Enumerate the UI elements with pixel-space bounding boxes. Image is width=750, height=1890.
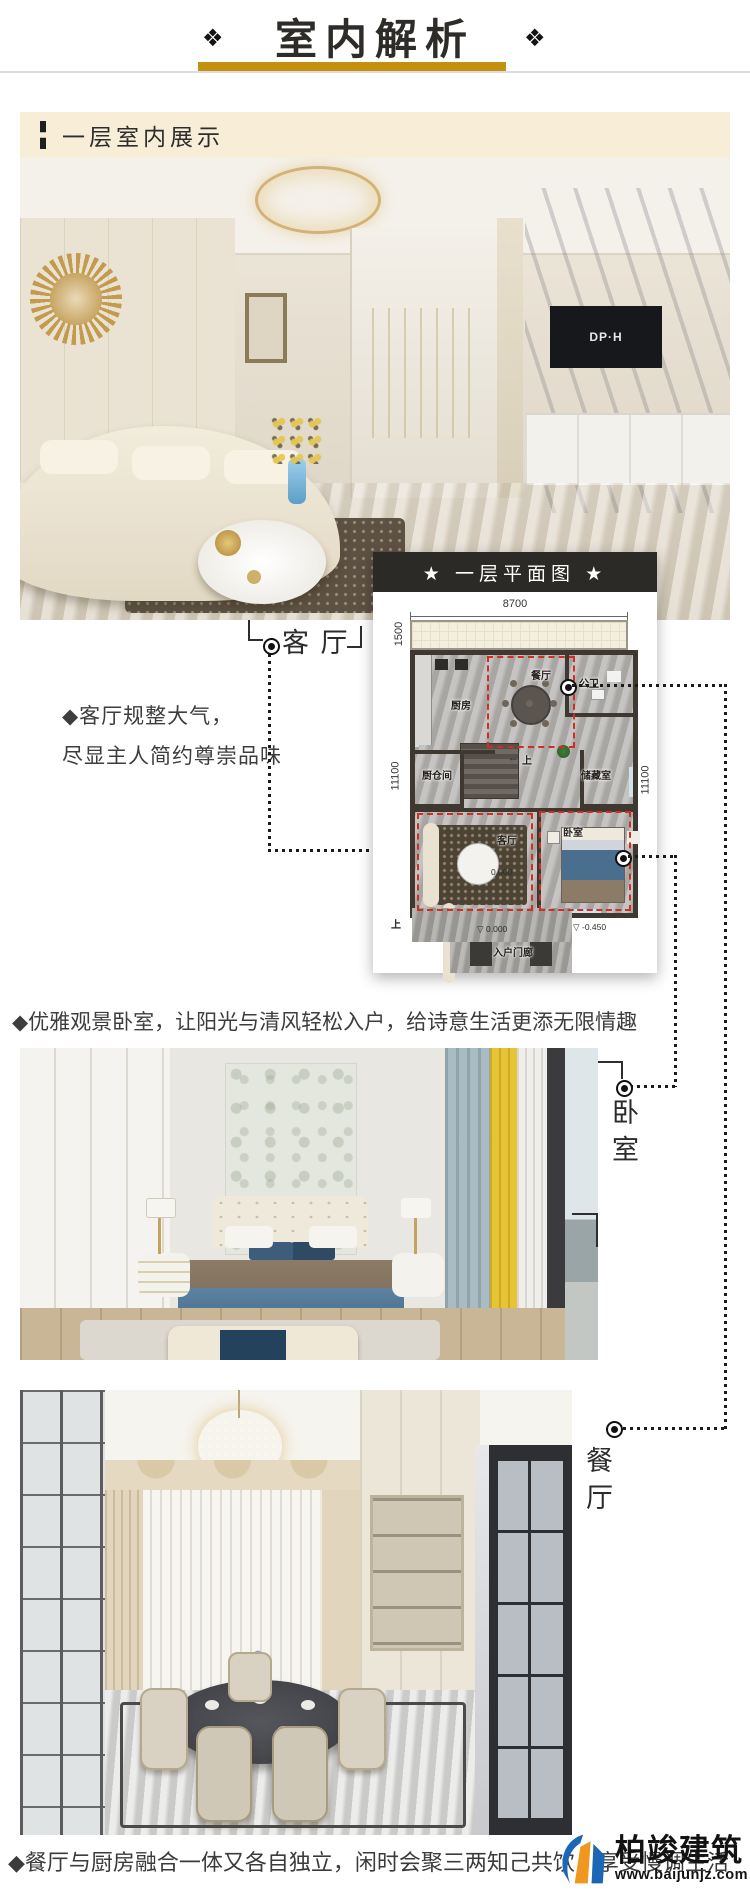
side-drapes xyxy=(105,1460,143,1690)
up-outside-label: 上 xyxy=(391,916,401,931)
floor-plan-title-bar: ★ 一层平面图 ★ xyxy=(373,552,657,592)
bedroom-photo xyxy=(20,1048,598,1360)
lamp-shades xyxy=(146,1198,176,1218)
chair-front-left xyxy=(196,1726,252,1822)
level-porch: 0.000 xyxy=(486,924,507,934)
bedroom-label-bullet xyxy=(616,1080,633,1097)
living-tag: 客 厅 xyxy=(282,621,350,660)
dining-tag: 餐厅 xyxy=(578,1446,617,1520)
room-label-pantry: 厨仓间 xyxy=(422,767,452,782)
room-label-kitchen: 厨房 xyxy=(451,697,471,712)
room-label-living: 客厅 xyxy=(497,832,517,847)
porch-mats xyxy=(470,942,492,966)
promo-page: 室内解析 ❖ ❖ 一层室内展示 DP·H 客 厅 xyxy=(0,0,750,1890)
curtain-yellow xyxy=(490,1048,517,1338)
floor-plan: 厨房 餐厅 公卫 厨仓间 储藏室 客厅 卧室 0.000 ← 上 xyxy=(410,650,638,918)
dim-top-line xyxy=(410,616,628,617)
dim-left: 11100 xyxy=(389,762,401,791)
floor-plan-title: ★ 一层平面图 ★ xyxy=(423,559,608,586)
level-porch-marker: ▽ xyxy=(477,924,484,935)
section-bar: 一层室内展示 xyxy=(20,112,730,158)
bedroom-bracket-vertical xyxy=(621,1061,623,1079)
ornament-left-icon: ❖ xyxy=(202,24,224,53)
dining-connector-vertical xyxy=(724,684,727,1430)
sunburst-center xyxy=(50,273,102,325)
room-label-porch: 入户门廊 xyxy=(493,944,533,959)
dining-room-photo xyxy=(20,1390,572,1835)
tag-bracket-right-vertical xyxy=(360,626,362,648)
page-title: 室内解析 xyxy=(0,6,750,67)
chair-back xyxy=(228,1652,272,1702)
living-highlight-box xyxy=(417,813,533,911)
bedroom-plan-bullet xyxy=(615,850,632,867)
chair-front-right xyxy=(272,1726,328,1822)
chair-left xyxy=(140,1688,188,1770)
room-label-storage: 储藏室 xyxy=(581,767,611,782)
media-console xyxy=(525,413,730,485)
coffee-table xyxy=(198,520,326,604)
stairs-arrow-icon: ← xyxy=(508,752,519,764)
watermark-texts: 柏竣建筑 www.baijunjz.com xyxy=(615,1835,748,1883)
room-label-dining: 餐厅 xyxy=(531,667,551,682)
dining-label-bullet xyxy=(606,1421,623,1438)
tv-logo-text: DP·H xyxy=(589,330,622,344)
living-desc-line2: 尽显主人简约尊崇品味 xyxy=(62,740,282,770)
gold-decor xyxy=(215,530,241,556)
sofa-cushions xyxy=(40,440,118,474)
watermark-site: www.baijunjz.com xyxy=(615,1868,748,1883)
window-view xyxy=(565,1048,598,1360)
stair-railing xyxy=(372,308,472,438)
curtain-swag xyxy=(105,1460,360,1490)
header-divider xyxy=(0,71,750,73)
flower-arrangement xyxy=(270,416,322,464)
title-underline xyxy=(198,62,506,71)
curtain-bluegray xyxy=(445,1048,490,1338)
chandelier xyxy=(255,166,381,234)
living-connector-horizontal xyxy=(268,849,388,852)
living-connector-vertical xyxy=(268,654,271,850)
bedroom-desc: ◆优雅观景卧室，让阳光与清风轻松入户，给诗意生活更添无限情趣 xyxy=(12,1006,637,1036)
glass-partition xyxy=(20,1390,105,1835)
place-settings xyxy=(205,1700,219,1710)
dining-bracket-vertical xyxy=(596,1213,598,1247)
tag-bracket-left-horizontal xyxy=(248,639,263,641)
tag-bracket-left-vertical xyxy=(248,620,250,641)
living-room-photo: DP·H xyxy=(20,158,730,620)
corridor-curtain xyxy=(497,218,523,498)
dining-connector-top xyxy=(572,684,726,687)
bedroom-tag: 卧室 xyxy=(604,1098,643,1172)
chair-right xyxy=(338,1688,386,1770)
tag-bracket-right-horizontal xyxy=(347,646,362,648)
room-label-bedroom: 卧室 xyxy=(563,824,583,839)
wall-art xyxy=(245,293,287,363)
level-outside-marker: ▽ xyxy=(573,922,580,933)
watermark-brand: 柏竣建筑 xyxy=(615,1835,748,1868)
door-glass xyxy=(498,1458,563,1818)
ornament-right-icon: ❖ xyxy=(524,24,546,53)
bedroom-connector-vertical xyxy=(674,855,677,1087)
section-label: 一层室内展示 xyxy=(62,118,224,152)
bench-throw xyxy=(220,1330,286,1360)
bedroom-connector-bottom xyxy=(630,1085,676,1088)
marble-trim xyxy=(475,1445,489,1835)
dining-connector-bottom xyxy=(616,1427,726,1430)
tv-screen: DP·H xyxy=(550,306,662,368)
blue-vase xyxy=(288,458,306,504)
dining-bracket-horizontal xyxy=(572,1213,598,1215)
display-niche xyxy=(370,1495,464,1651)
living-tag-bullet xyxy=(263,638,280,655)
bedroom-connector-top xyxy=(628,855,676,858)
curtain-sheer xyxy=(517,1048,547,1338)
stairs-up-label: 上 xyxy=(522,752,532,767)
nightstands xyxy=(138,1253,190,1297)
living-desc-line1: ◆客厅规整大气， xyxy=(62,700,233,730)
dining-plan-bullet xyxy=(560,679,577,696)
dim-top: 8700 xyxy=(373,598,657,610)
level-living: 0.000 xyxy=(491,867,512,877)
level-outside: -0.450 xyxy=(582,922,606,932)
dim-right: 11100 xyxy=(639,766,651,795)
balcony xyxy=(410,620,628,650)
dashed-bar-icon xyxy=(40,121,46,149)
floor-plan-panel: ★ 一层平面图 ★ 8700 1500 11100 11100 厨房 xyxy=(373,552,657,973)
watermark: 柏竣建筑 www.baijunjz.com xyxy=(555,1830,748,1888)
pillows xyxy=(225,1226,273,1248)
bedroom-bracket-horizontal xyxy=(598,1061,623,1063)
room-label-bath: 公卫 xyxy=(579,675,599,690)
dim-balcony: 1500 xyxy=(393,622,405,646)
watermark-logo-icon xyxy=(555,1830,615,1888)
